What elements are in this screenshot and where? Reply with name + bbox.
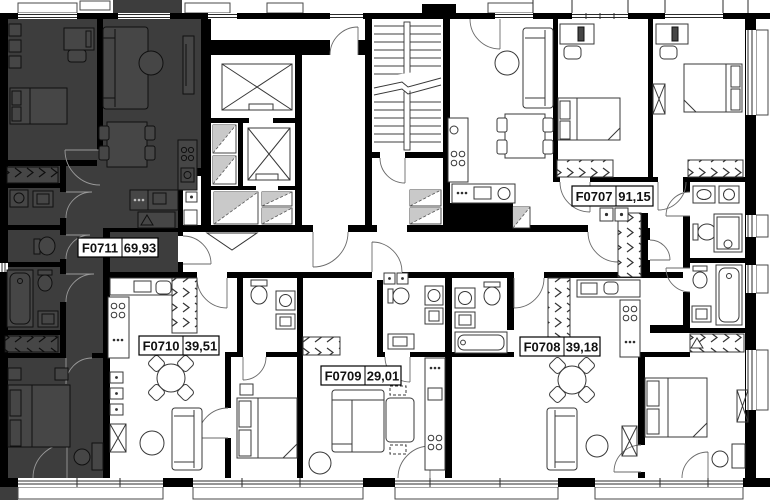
shelf-icon [110, 388, 123, 399]
bed-icon [8, 385, 70, 447]
folding-chair-icon [110, 424, 126, 452]
bed-icon [645, 378, 707, 437]
window-icon [572, 13, 628, 19]
wardrobe-icon [690, 334, 744, 352]
floor-plan: F0707 91,15 F0708 39,18 F0709 29,01 F071… [0, 0, 770, 500]
window-icon [495, 13, 533, 19]
window-icon [595, 478, 743, 487]
bathroom-F0708 [455, 282, 507, 353]
storage-box [513, 207, 530, 228]
dining-table-icon [386, 386, 414, 454]
washing-machine-icon [455, 288, 475, 308]
toilet-icon [34, 237, 55, 255]
dining-table-icon [147, 354, 194, 401]
armchair-icon [495, 51, 519, 75]
svg-text:F0709: F0709 [325, 369, 362, 384]
fridge-icon [130, 190, 148, 210]
kitchen-sink-icon [148, 190, 178, 210]
door-swing-icon [313, 232, 348, 267]
window-icon [746, 30, 756, 115]
kitchen-counter-icon [452, 184, 515, 203]
svg-text:91,15: 91,15 [618, 189, 651, 204]
bathroom-F0707-2 [692, 265, 742, 325]
door-swing-icon [682, 452, 708, 478]
mailbox-storage [262, 208, 292, 224]
folding-chair-icon [622, 426, 637, 456]
svg-text:F0707: F0707 [576, 189, 613, 204]
shelf-icon [9, 24, 21, 36]
unit-label-F0708[interactable]: F0708 39,18 [520, 337, 600, 356]
wardrobe-icon [688, 160, 743, 177]
toilet-icon [251, 280, 267, 304]
svg-text:39,51: 39,51 [185, 339, 218, 354]
bed-icon [10, 88, 67, 124]
coffee-table-icon [140, 431, 164, 455]
toilet-icon [693, 224, 716, 240]
unit-F0710[interactable] [108, 278, 297, 470]
door-swing-icon [658, 182, 686, 210]
wardrobe-icon [5, 336, 58, 352]
sofa-icon [547, 408, 577, 470]
sink-icon [33, 191, 53, 207]
window-icon [208, 13, 237, 19]
bathtub-icon [7, 270, 33, 327]
window-icon [395, 478, 558, 487]
bed-icon [237, 398, 297, 458]
kitchen-icon [425, 358, 445, 470]
door-leaf [184, 210, 197, 225]
armchair-icon [139, 51, 163, 75]
shaft-box [213, 125, 236, 153]
balcony-corner-highlighted [0, 487, 18, 500]
sofa-icon [523, 28, 553, 108]
svg-text:F0710: F0710 [143, 339, 180, 354]
window-icon [665, 13, 723, 19]
wardrobe-icon [303, 337, 340, 355]
desk-icon [560, 24, 594, 59]
washing-machine-icon [425, 286, 443, 305]
unit-label-F0707[interactable]: F0707 91,15 [572, 186, 653, 206]
svg-text:29,01: 29,01 [367, 369, 400, 384]
stove-icon [448, 118, 468, 182]
washing-machine-icon [719, 186, 739, 203]
elevator-icon[interactable] [222, 64, 292, 123]
balcony-highlighted [113, 0, 182, 13]
nightstand-icon [55, 368, 68, 380]
door-swing-icon [372, 242, 402, 272]
pouf-icon [712, 451, 728, 467]
sink-icon [10, 190, 28, 207]
shoe-cabinet [384, 273, 408, 284]
sink-icon [38, 311, 58, 327]
svg-text:39,18: 39,18 [566, 340, 599, 355]
door-swing-icon [650, 240, 670, 260]
window-icon [18, 478, 163, 487]
dining-table-icon [548, 356, 595, 403]
door-swing-icon [514, 278, 544, 308]
door-swing-icon [243, 357, 266, 380]
toilet-icon [693, 266, 707, 288]
unit-label-F0711[interactable]: F0711 69,93 [78, 238, 158, 257]
coffee-table-icon [586, 435, 608, 457]
pouf-icon [309, 452, 331, 474]
svg-text:F0708: F0708 [524, 340, 561, 355]
shelf-icon [110, 372, 123, 383]
shelf-icon [9, 56, 21, 68]
window-icon [330, 13, 363, 19]
sink-icon [388, 334, 414, 349]
nightstand-icon [240, 384, 253, 395]
dining-table-icon [497, 114, 553, 158]
svg-text:69,93: 69,93 [124, 241, 157, 256]
desk-icon [656, 24, 688, 59]
washing-machine-icon [276, 291, 295, 310]
window-icon [118, 13, 170, 19]
shaft-box [213, 156, 236, 184]
wardrobe-icon [138, 212, 175, 228]
storage-box [410, 190, 441, 206]
window-icon [746, 265, 756, 293]
wardrobe-icon [557, 160, 613, 177]
bed-icon [684, 64, 742, 112]
elevator-icon[interactable] [248, 128, 290, 190]
door-swing-icon [330, 27, 358, 55]
wardrobe-icon [618, 213, 641, 277]
storage-box [410, 208, 441, 224]
staircase-icon[interactable] [374, 22, 441, 150]
stove-icon [108, 297, 129, 358]
stove-icon [178, 140, 197, 190]
wardrobe-icon [7, 167, 58, 183]
door-swing-icon [666, 268, 690, 292]
wardrobe-icon [172, 278, 197, 333]
door-swing-icon [183, 236, 211, 264]
door-swing-icon [470, 19, 500, 49]
entrance-mat [207, 233, 257, 250]
kitchen-counter-icon [577, 280, 640, 297]
toilet-icon [484, 282, 500, 305]
window-icon [18, 13, 77, 19]
svg-text:F0711: F0711 [82, 241, 118, 256]
shoe-cabinet [600, 208, 628, 221]
bathroom-F0710 [251, 280, 295, 329]
door-swing-icon [588, 232, 618, 262]
unit-label-F0709[interactable]: F0709 29,01 [321, 366, 401, 385]
mailbox-storage [214, 192, 258, 224]
tv-stand-icon [92, 443, 103, 470]
door-swing-icon [380, 158, 405, 183]
sink-icon [276, 314, 295, 329]
nightstand-icon [732, 444, 745, 468]
dining-table-icon [99, 122, 155, 167]
sink-icon [455, 312, 475, 328]
nightstand-icon [8, 368, 21, 380]
sofa-icon [332, 390, 384, 452]
toilet-icon [38, 270, 52, 291]
window-icon [746, 215, 756, 237]
door-swing-icon [197, 278, 227, 308]
tv-stand-icon [183, 36, 194, 94]
sink-icon [425, 308, 443, 324]
bathtub-icon [455, 332, 507, 353]
door-swing-icon [666, 192, 690, 216]
window-icon [193, 478, 363, 487]
shelf-icon [9, 40, 21, 52]
toilet-icon [388, 288, 409, 304]
folding-chair-icon [653, 84, 665, 114]
pouf-icon [74, 449, 90, 465]
mailbox-storage [262, 192, 292, 206]
bed-icon [558, 98, 620, 140]
sink-icon [692, 306, 711, 322]
bathroom-F0707-1 [693, 186, 742, 252]
unit-label-F0710[interactable]: F0710 39,51 [139, 336, 219, 355]
sofa-icon [172, 408, 202, 470]
bathtub-icon [716, 265, 742, 325]
sink-icon [693, 186, 715, 203]
shelf-icon [110, 404, 123, 415]
stove-icon [620, 300, 640, 357]
shower-icon [714, 214, 742, 252]
bathroom-F0709 [388, 286, 443, 349]
